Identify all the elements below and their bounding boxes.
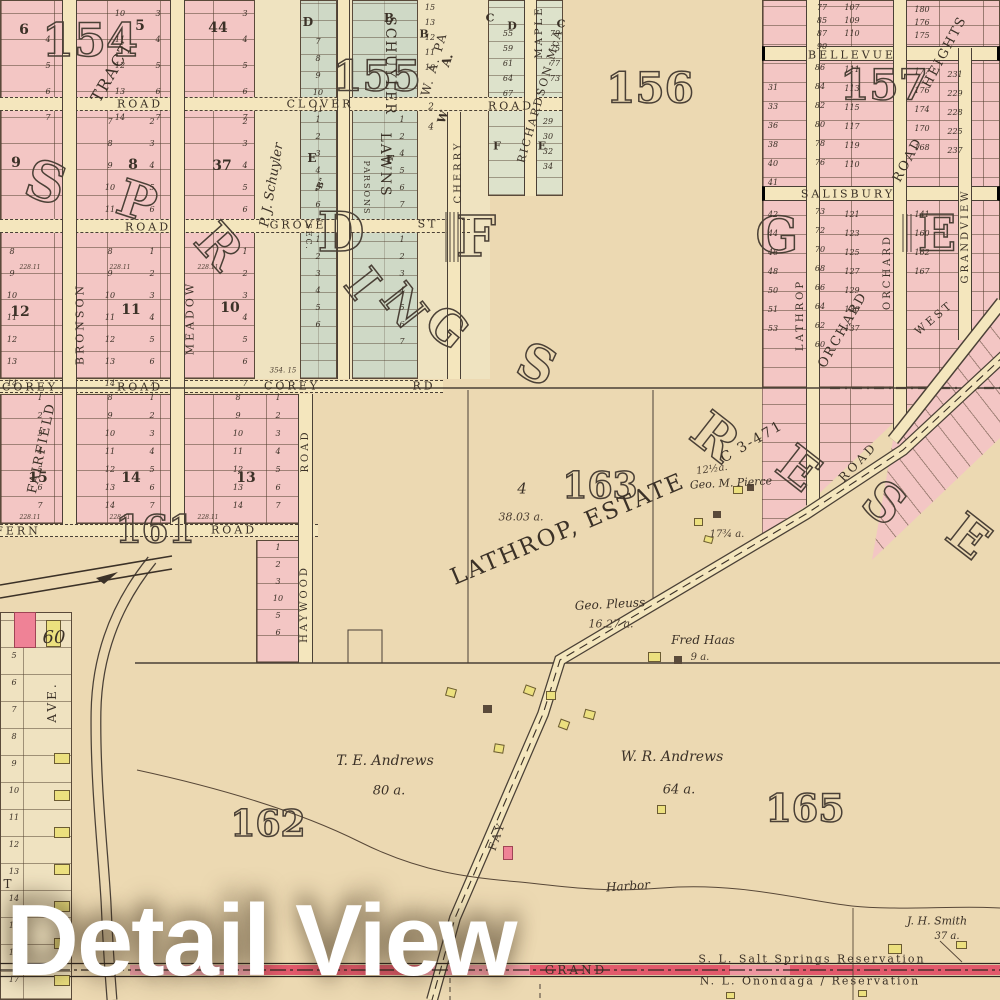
lot-number: 87 — [817, 30, 827, 38]
lot-number: 11 — [313, 106, 323, 114]
lot-number: 11 — [105, 314, 115, 322]
maple-st: MAPLE — [535, 5, 545, 58]
lot-number: 60 — [815, 341, 825, 349]
lot-number: 5 — [155, 62, 160, 70]
lot-number: 7 — [149, 502, 154, 510]
lot-number: 129 — [844, 287, 859, 295]
lot-number: 11 — [9, 814, 19, 822]
lot-number: 228 — [947, 109, 962, 117]
te-andrews: T. E. Andrews — [336, 754, 434, 768]
acres-37: 37 a. — [934, 932, 959, 942]
sec-d: SEC. — [304, 223, 312, 251]
lot-number: 113 — [844, 85, 859, 93]
lot-number: 8 — [107, 394, 112, 402]
lot-number: 7 — [399, 201, 404, 209]
lot-number: 38 — [768, 141, 778, 149]
lot-number: 13 — [425, 19, 435, 27]
lot-number: 1 — [399, 116, 404, 124]
lot-number: 12 — [7, 336, 17, 344]
lot-number: 7 — [399, 338, 404, 346]
acres-1734: 17¾ a. — [710, 530, 745, 540]
lot-number: 12 — [425, 34, 435, 42]
lot-number: 30 — [543, 133, 553, 141]
lot-number: 6 — [399, 321, 404, 329]
lot-number: 64 — [503, 75, 513, 83]
lot-number: 4 — [242, 162, 247, 170]
cherry-st: CHERRY — [454, 140, 464, 203]
lot-number: 3 — [242, 292, 247, 300]
lot-number: 3 — [315, 150, 320, 158]
lot-number: 73 — [550, 75, 560, 83]
lot-number: 9 — [11, 760, 16, 768]
acres-1212: 12½a. — [696, 463, 729, 477]
lot-number: 6 — [149, 206, 154, 214]
lot-number: 5 — [37, 466, 42, 474]
geo-pleuss: Geo. Pleuss — [575, 596, 646, 612]
lot-number: 1 — [242, 248, 247, 256]
lot-number: 12 — [115, 62, 125, 70]
lot-number: 2 — [275, 412, 280, 420]
lot-number: 4 — [149, 448, 154, 456]
lot-number: 6 — [242, 88, 247, 96]
lot-number: 59 — [503, 45, 513, 53]
harbor-stream: Harbor — [606, 878, 651, 893]
block-9: 9 — [11, 156, 21, 170]
lot-number: 2 — [149, 118, 154, 126]
lot-number: 84 — [815, 83, 825, 91]
lot-number: 237 — [947, 147, 962, 155]
lot-number: 5 — [11, 652, 16, 660]
bronson-road: BRONSON — [75, 283, 86, 365]
dim-5: 228.11 — [110, 515, 131, 521]
lot-number: 77 — [550, 60, 560, 68]
lot-number: 12 — [105, 466, 115, 474]
dim-1: 228.11 — [20, 265, 41, 271]
lot-number: 5 — [275, 612, 280, 620]
lot-number: 6 — [155, 88, 160, 96]
lot-number: 61 — [503, 60, 513, 68]
lot-number: 10 — [105, 184, 115, 192]
lot-number: 4 — [399, 287, 404, 295]
lot-letter-b1: B — [384, 12, 394, 24]
lot-number: 55 — [503, 30, 513, 38]
lot-number: 1 — [149, 394, 154, 402]
lot-number: 13 — [7, 358, 17, 366]
lot-number: 5 — [242, 336, 247, 344]
lot-number: 2 — [399, 253, 404, 261]
lot-number: 121 — [844, 211, 859, 219]
salisbury-road: SALISBURY — [801, 189, 895, 200]
lot-letter-f2: F — [493, 141, 501, 152]
lot-number: 109 — [844, 17, 859, 25]
lot-number: 90 — [817, 43, 827, 51]
watermark-text: Detail View — [6, 884, 515, 999]
block-37: 37 — [212, 159, 231, 173]
lot-number: 10 — [105, 430, 115, 438]
lot-number: 13 — [115, 88, 125, 96]
lot-number: 8 — [9, 248, 14, 256]
lot-number: 46 — [768, 249, 778, 257]
lot-number: 29 — [543, 118, 553, 126]
lot-number: 7 — [45, 114, 50, 122]
lot-number: 175 — [914, 32, 929, 40]
lot-number: 174 — [914, 106, 929, 114]
west-st: WEST — [913, 299, 955, 337]
lot-number: 10 — [313, 89, 323, 97]
salt-springs-res: S. L. Salt Springs Reservation — [698, 954, 925, 965]
lot-number: 5 — [242, 184, 247, 192]
orchard-st: ORCHARD — [883, 234, 893, 310]
dim-35415: 354. 15 — [270, 368, 297, 375]
grandview-st: GRANDVIEW — [961, 188, 971, 283]
lot-number: 14 — [233, 502, 243, 510]
lot-number: 86 — [815, 64, 825, 72]
lot-number: 110 — [844, 30, 859, 38]
block-14: 14 — [121, 471, 140, 485]
grand-road: GRAND — [545, 964, 607, 976]
clover-road-2: ROAD — [488, 101, 534, 112]
lot-number: 32 — [543, 148, 553, 156]
lot-number: 9 — [9, 270, 14, 278]
lot-number: 177 — [914, 68, 929, 76]
lot-number: 9 — [107, 162, 112, 170]
lot-number: 79 — [550, 30, 560, 38]
block-11: 11 — [121, 303, 140, 317]
lot-number: 8 — [315, 55, 320, 63]
lot-number: 180 — [914, 6, 929, 14]
haywood-road-1: ROAD — [301, 430, 311, 473]
lot-number: 5 — [242, 62, 247, 70]
lot-number: 11 — [115, 36, 125, 44]
lot-number: 75 — [550, 45, 560, 53]
lot-number: 2 — [275, 561, 280, 569]
lot-number: 6 — [275, 484, 280, 492]
acres-9: 9 a. — [691, 653, 710, 663]
lot-number: 5 — [315, 184, 320, 192]
label-layer: ROADROADCLOVERROADGROVESTCOREYROADCOREYR… — [0, 0, 1000, 1000]
lot-number: 3 — [315, 270, 320, 278]
lot-number: 13 — [105, 484, 115, 492]
acres-1627: 16.27 a. — [588, 619, 633, 630]
fred-haas: Fred Haas — [671, 634, 735, 646]
lot-number: 78 — [815, 140, 825, 148]
lot-number: 40 — [768, 160, 778, 168]
lot-number: 5 — [149, 466, 154, 474]
onondaga-res: N. L. Onondaga / Reservation — [700, 976, 921, 987]
lot-number: 6 — [11, 679, 16, 687]
lot-number: 1 — [37, 394, 42, 402]
lot-number: 62 — [815, 322, 825, 330]
lot-number: 229 — [947, 90, 962, 98]
lot-number: 9 — [235, 412, 240, 420]
lot-number: 2 — [242, 118, 247, 126]
lot-number: 10 — [9, 787, 19, 795]
block-6: 6 — [19, 23, 29, 37]
lot-number: 1 — [275, 394, 280, 402]
lot-number: 11 — [7, 314, 17, 322]
lot-number: 1 — [315, 236, 320, 244]
lot-letter-a: A. — [439, 52, 455, 69]
tract-label: TRACT — [88, 39, 135, 105]
lot-number: 7 — [149, 380, 154, 388]
lot-number: 11 — [105, 206, 115, 214]
lot-number: 50 — [768, 287, 778, 295]
lot-number: 1 — [399, 236, 404, 244]
lot-number: 7 — [155, 114, 160, 122]
lot-letter-c2: C — [557, 19, 566, 30]
haywood-road-2: HAYWOOD — [300, 565, 310, 643]
lot-number: 1 — [275, 544, 280, 552]
lot-number: 5 — [149, 336, 154, 344]
lot-number: 44 — [768, 230, 778, 238]
lot-number: 111 — [844, 66, 859, 74]
lathrop-estate: LATHROP, ESTATE — [448, 470, 689, 590]
lot-number: 10 — [7, 292, 17, 300]
lot-number: 137 — [844, 325, 859, 333]
lot-number: 11 — [425, 49, 435, 57]
lot-number: 10 — [115, 10, 125, 18]
lot-number: 160 — [914, 230, 929, 238]
lot-number: 4 — [45, 36, 50, 44]
lot-number: 31 — [768, 84, 778, 92]
lot-number: 8 — [235, 394, 240, 402]
c-3-471: C 3-471 — [718, 419, 785, 466]
schuyler-lawns-1: SCHUYLER — [383, 16, 397, 116]
lot-number: 7 — [275, 502, 280, 510]
lot-number: 3 — [155, 10, 160, 18]
lot-number: 110 — [844, 161, 859, 169]
lot-number: 5 — [149, 184, 154, 192]
lot-number: 7 — [315, 38, 320, 46]
lot-number: 123 — [844, 230, 859, 238]
lot-number: 162 — [914, 249, 929, 257]
lot-number: 11 — [233, 448, 243, 456]
lot-number: 66 — [815, 284, 825, 292]
lot-number: 82 — [815, 102, 825, 110]
lot-number: 42 — [768, 211, 778, 219]
lot-number: 4 — [37, 448, 42, 456]
lot-number: 5 — [399, 304, 404, 312]
lot-number: 6 — [242, 358, 247, 366]
lot-number: 14 — [105, 380, 115, 388]
lot-number: 6 — [275, 629, 280, 637]
lot-letter-c1: C — [486, 13, 495, 24]
lot-number: 2 — [315, 253, 320, 261]
wr-andrews: W. R. Andrews — [621, 750, 724, 764]
lot-number: 2 — [315, 133, 320, 141]
lot-number: 4 — [399, 150, 404, 158]
lot-number: 4 — [275, 448, 280, 456]
lot-number: 176 — [914, 19, 929, 27]
lot-number: 117 — [844, 123, 859, 131]
lot-number: 48 — [768, 268, 778, 276]
corey-road-w2: ROAD — [117, 382, 163, 393]
lot-number: 125 — [844, 249, 859, 257]
lot-number: 8 — [11, 733, 16, 741]
lot-number: 7 — [315, 218, 320, 226]
lot-number: 14 — [105, 502, 115, 510]
lot-number: 3 — [149, 430, 154, 438]
lot-number: 12 — [233, 466, 243, 474]
lot-number: 6 — [242, 206, 247, 214]
geo-m-pierce: Geo. M. Pierce — [690, 475, 773, 490]
lot-number: 141 — [914, 211, 929, 219]
block-44: 44 — [208, 21, 227, 35]
atlas-map-page: 154155156157161162163165SPRINGSDFGERESE … — [0, 0, 1000, 1000]
lot-number: 7 — [37, 502, 42, 510]
lot-number: 33 — [768, 103, 778, 111]
lot-number: 6 — [37, 484, 42, 492]
meadow-road: MEADOW — [185, 281, 196, 355]
lot-number: 7 — [242, 380, 247, 388]
lot-number: 6 — [45, 88, 50, 96]
lot-number: 3 — [399, 270, 404, 278]
lot-number: 1 — [149, 248, 154, 256]
lot-letter-d1: D — [303, 16, 313, 28]
lot-number: 85 — [817, 17, 827, 25]
lot-number: 168 — [914, 144, 929, 152]
fern-road-1: FERN — [0, 526, 41, 537]
lot-number: 67 — [503, 90, 513, 98]
lot-number: 4 — [242, 36, 247, 44]
lot-number: 9 — [107, 270, 112, 278]
lot-number: 6 — [149, 358, 154, 366]
lot-number: 64 — [815, 303, 825, 311]
block-5: 5 — [135, 19, 145, 33]
lot-number: 176 — [914, 87, 929, 95]
lot-number: 80 — [815, 121, 825, 129]
lot-number: 9 — [315, 72, 320, 80]
road-label-1: ROAD — [117, 99, 163, 110]
lot-number: 73 — [815, 208, 825, 216]
lot-number: 4 — [149, 162, 154, 170]
lot-number: 5 — [275, 466, 280, 474]
lot-num-2w: 2 — [428, 104, 434, 113]
lot-number: 3 — [149, 140, 154, 148]
lot-number: 13 — [233, 484, 243, 492]
lot-number: 11 — [105, 448, 115, 456]
lot-number: 7 — [11, 706, 16, 714]
diagonal-road: ROAD — [837, 440, 880, 484]
pj-schuyler: P. J. Schuyler — [258, 142, 286, 228]
grove-st-2: ST — [418, 219, 439, 230]
dim-2: 228.11 — [110, 265, 131, 271]
lot-number: 3 — [275, 578, 280, 586]
lot-number: 9 — [107, 412, 112, 420]
lot-number: 10 — [233, 430, 243, 438]
lot-number: 2 — [242, 270, 247, 278]
parsons: PARSONS — [362, 161, 370, 216]
acres-80: 80 a. — [373, 785, 406, 798]
lot-number: 3 — [37, 430, 42, 438]
lot-number: 77 — [817, 4, 827, 12]
parcel-4: 4 — [517, 482, 527, 497]
lot-number: 2 — [149, 270, 154, 278]
lot-number: 127 — [844, 268, 859, 276]
lot-number: 107 — [844, 4, 859, 12]
lot-number: 6 — [399, 184, 404, 192]
ave-st: AVE. — [46, 681, 58, 722]
lot-number: 4 — [242, 314, 247, 322]
lot-number: 2 — [37, 412, 42, 420]
lot-number: 7 — [107, 118, 112, 126]
lot-number: 14 — [115, 114, 125, 122]
road-label-2: ROAD — [125, 222, 171, 233]
lot-number: 36 — [768, 122, 778, 130]
lot-number: 130 — [844, 306, 859, 314]
lot-number: 170 — [914, 125, 929, 133]
lot-number: 4 — [149, 314, 154, 322]
acres-64: 64 a. — [663, 784, 696, 797]
lot-number: 13 — [105, 358, 115, 366]
lot-number: 167 — [914, 268, 929, 276]
lot-number: 34 — [543, 163, 553, 171]
dim-3: 228.11 — [198, 265, 219, 271]
lot-number: 72 — [815, 227, 825, 235]
lot-number: 6 — [315, 321, 320, 329]
lot-number: 5 — [45, 62, 50, 70]
block-60: 60 — [43, 629, 66, 647]
lot-letter-w: W — [436, 109, 451, 124]
lot-number: 231 — [947, 71, 962, 79]
lot-number: 5 — [315, 304, 320, 312]
dim-4: 228.11 — [20, 515, 41, 521]
lot-number: 76 — [815, 159, 825, 167]
lot-number: 4 — [315, 287, 320, 295]
lathrop-st: LATHROP — [796, 279, 806, 351]
lot-number: 1 — [315, 116, 320, 124]
lot-number: 3 — [242, 140, 247, 148]
lot-number: 10 — [273, 595, 283, 603]
lot-number: 225 — [947, 128, 962, 136]
lot-number: 51 — [768, 306, 778, 314]
corey-road-e1: COREY — [264, 381, 320, 392]
lot-number: 3 — [275, 430, 280, 438]
lot-number: 10 — [425, 64, 435, 72]
lot-number: 2 — [149, 412, 154, 420]
block-8: 8 — [128, 158, 138, 172]
lot-number: 2 — [399, 133, 404, 141]
lot-number: 10 — [105, 292, 115, 300]
lot-number: 4 — [315, 167, 320, 175]
lot-number: 12 — [105, 336, 115, 344]
lot-number: 70 — [815, 246, 825, 254]
lot-number: 68 — [815, 265, 825, 273]
lot-number: 6 — [315, 201, 320, 209]
lot-number: 14 — [7, 380, 17, 388]
dim-6: 228.11 — [198, 515, 219, 521]
lot-number: 8 — [107, 248, 112, 256]
block-10: 10 — [220, 301, 239, 315]
lot-number: 119 — [844, 142, 859, 150]
lot-number: 13 — [9, 868, 19, 876]
lot-number: 8 — [107, 140, 112, 148]
lot-number: 115 — [844, 104, 859, 112]
lot-number: 12 — [9, 841, 19, 849]
lot-number: 41 — [768, 179, 778, 187]
fay-road: FAY — [487, 820, 508, 852]
corey-road-e2: RD — [412, 381, 435, 392]
bellevue-road: BELLEVUE — [808, 50, 896, 61]
lot-letter-f1: F — [386, 154, 395, 166]
lot-number: 15 — [425, 4, 435, 12]
lot-number: 3 — [242, 10, 247, 18]
fern-road-2: ROAD — [211, 525, 257, 536]
lot-num-4w: 4 — [428, 124, 434, 133]
lot-number: 53 — [768, 325, 778, 333]
lot-number: 6 — [149, 484, 154, 492]
lot-number: 5 — [399, 167, 404, 175]
